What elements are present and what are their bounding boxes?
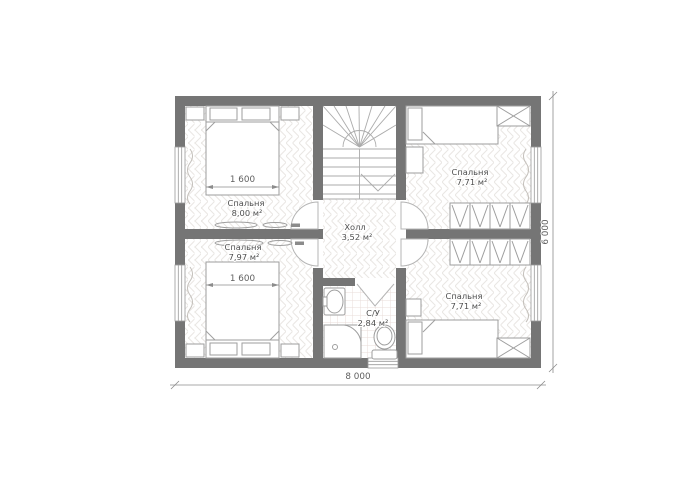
room-area: 7,97 м² <box>229 252 260 262</box>
room-name: С/У <box>366 308 380 318</box>
wall-right <box>531 96 541 368</box>
wall-stair-left <box>313 106 323 200</box>
overall-width-label: 8 000 <box>345 372 371 382</box>
window-right-bottom <box>531 265 541 321</box>
room-area: 2,84 м² <box>358 318 389 328</box>
wardrobe <box>450 239 530 265</box>
sink <box>323 288 345 315</box>
wall-left <box>175 96 185 368</box>
room-name: Спальня <box>452 167 489 177</box>
wall-bathroom-left <box>313 268 323 358</box>
window-right-top <box>531 147 541 203</box>
window-left-bottom <box>175 265 185 321</box>
closet-crossed <box>497 106 530 126</box>
wall-bathroom-right <box>396 268 406 358</box>
room-name: Спальня <box>446 291 483 301</box>
floor-plan-svg: 1 600 1 600 <box>0 0 684 502</box>
shower <box>324 325 361 358</box>
wall-top <box>175 96 541 106</box>
wall-stair-right <box>396 106 406 200</box>
wall-bathroom-top <box>323 278 355 286</box>
room-name: Спальня <box>225 242 262 252</box>
wall-bottom <box>175 358 541 368</box>
pillow <box>242 343 270 355</box>
nightstand <box>186 107 204 120</box>
bed-width-label: 1 600 <box>230 175 256 185</box>
pillow <box>210 108 237 120</box>
dimension-bottom: 8 000 <box>170 372 546 389</box>
nightstand <box>186 344 204 357</box>
nightstand <box>281 344 299 357</box>
nightstand <box>406 299 421 316</box>
dimension-right: 6 000 <box>541 91 557 373</box>
toilet <box>372 325 397 359</box>
bed-width-label: 1 600 <box>230 274 256 284</box>
closet-crossed <box>497 338 530 358</box>
wall-divider-left <box>185 229 323 239</box>
window-left-top <box>175 147 185 203</box>
room-area: 7,71 м² <box>457 177 488 187</box>
pillow <box>408 108 422 140</box>
stairs <box>323 106 396 199</box>
pillow <box>210 343 237 355</box>
overall-height-label: 6 000 <box>541 219 551 245</box>
wall-divider-right <box>406 229 531 239</box>
room-name: Спальня <box>228 198 265 208</box>
room-area: 7,71 м² <box>451 301 482 311</box>
room-area: 3,52 м² <box>342 232 373 242</box>
nightstand <box>406 147 423 173</box>
pillow <box>242 108 270 120</box>
room-name: Холл <box>344 222 365 232</box>
nightstand <box>281 107 299 120</box>
wardrobe <box>450 203 530 229</box>
room-area: 8,00 м² <box>232 208 263 218</box>
pillow <box>408 322 422 354</box>
floor-plan-page: 1 600 1 600 <box>0 0 684 502</box>
stair-direction-mark <box>361 174 395 191</box>
